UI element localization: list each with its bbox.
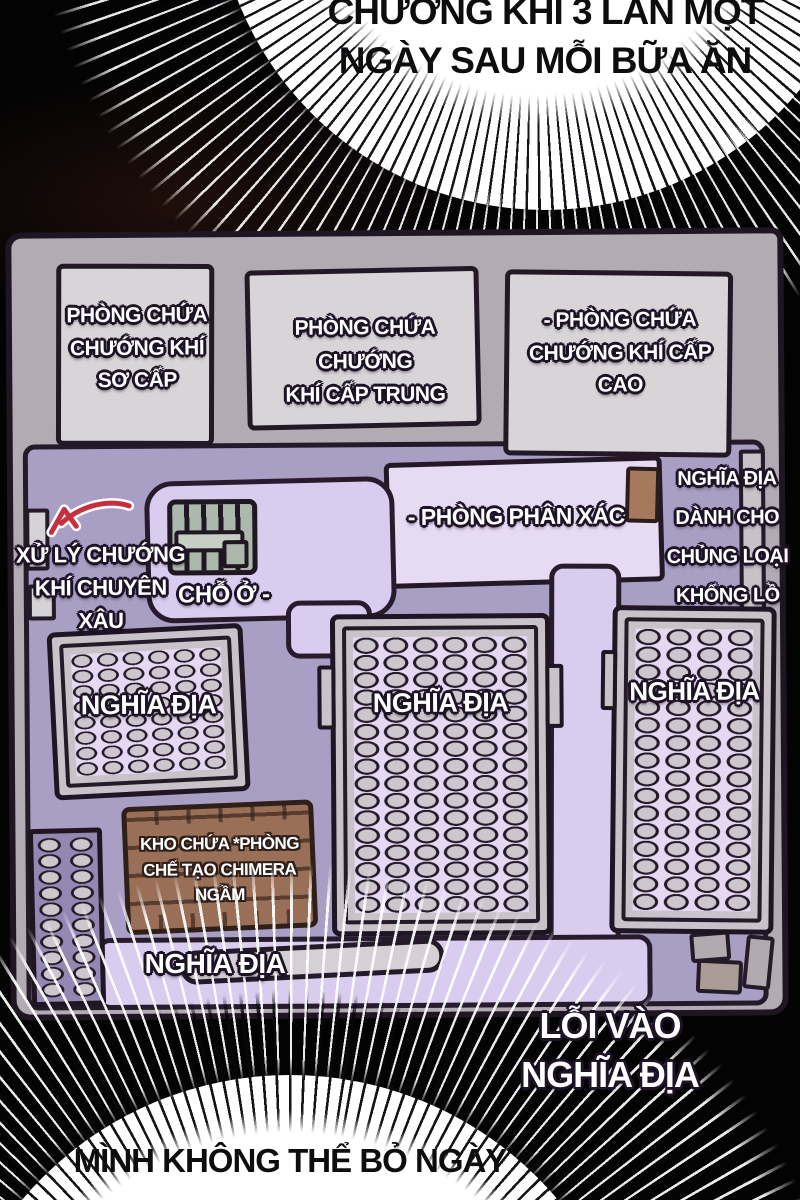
cemetery-left-label: NGHĨA ĐỊA (48, 689, 248, 722)
facility-map: PHÒNG CHỨA CHƯỚNG KHÍ SƠ CẤP PHÒNG CHỨA … (5, 227, 788, 1020)
cemetery-right-graves (621, 617, 764, 922)
crate-3 (742, 934, 775, 990)
cemetery-middle-label: NGHĨA ĐỊA (340, 687, 540, 720)
corpse-division-label: - PHÒNG PHÂN XÁC (401, 502, 631, 530)
room-miasma-basic-label: PHÒNG CHỨA CHƯỚNG KHÍ SƠ CẤP (52, 299, 223, 398)
cemetery-middle-graves (342, 625, 540, 924)
room-miasma-high-label: - PHÒNG CHỨA CHƯỚNG KHÍ CẤP CAO (510, 304, 731, 403)
cemetery-middle-tab-right (545, 664, 563, 728)
miasma-processing-label: XỬ LÝ CHƯỚNG KHÍ CHUYÊN XÂU (15, 537, 186, 637)
cemetery-entrance-label: LỖI VÀO NGHĨA ĐỊA (480, 1002, 740, 1099)
room-miasma-mid-label: PHÒNG CHỨA CHƯỚNG KHÍ CẤP TRUNG (250, 310, 481, 412)
giant-cemetery-label: NGHĨA ĐỊA DÀNH CHO CHỦNG LOẠI KHỔNG LỒ (657, 459, 798, 616)
cemetery-bottom-label: NGHĨA ĐỊA (110, 948, 320, 980)
red-arrow-icon (43, 496, 135, 545)
top-speech-text: CHƯỚNG KHÍ 3 LẦN MỘT NGÀY SAU MỖI BỮA ĂN (280, 0, 800, 86)
comic-panel: CHƯỚNG KHÍ 3 LẦN MỘT NGÀY SAU MỖI BỮA ĂN… (0, 0, 800, 1200)
bottom-speech-text: MÌNH KHÔNG THỂ BỎ NGÀY (55, 1142, 525, 1180)
crate-2 (696, 959, 743, 995)
residence-notch (222, 540, 248, 568)
cemetery-right-label: NGHĨA ĐỊA (594, 675, 794, 707)
cemetery-middle-tab-left (317, 665, 335, 729)
chimera-warehouse-label: KHO CHỨA *PHÒNG CHẾ TẠO CHIMERA NGẦM (123, 831, 316, 909)
column-building (28, 827, 106, 1007)
cemetery-right (609, 605, 776, 935)
cemetery-middle (330, 613, 552, 937)
column-building-blocks (37, 837, 97, 998)
